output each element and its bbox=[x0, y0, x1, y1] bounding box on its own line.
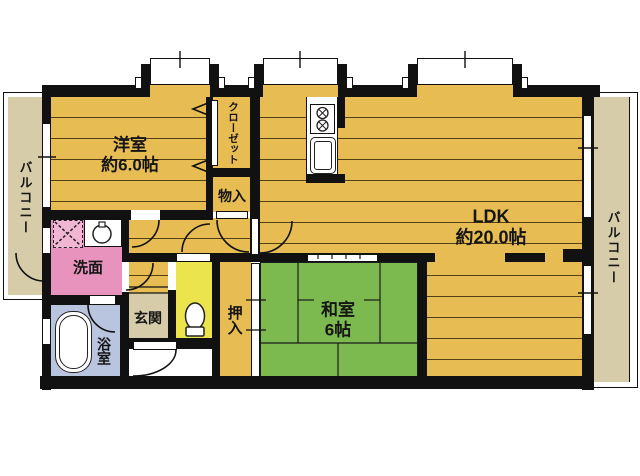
door-gap-balcony bbox=[43, 228, 50, 253]
entrance-porch bbox=[130, 350, 177, 376]
side-window-ldk-upper bbox=[583, 115, 592, 218]
door-gap-bath bbox=[90, 296, 115, 304]
ldk-name: LDK bbox=[472, 206, 509, 226]
label-monoire: 物入 bbox=[218, 188, 246, 204]
kitchen-sink-icon bbox=[310, 137, 336, 174]
shoji-partition-washitsu bbox=[307, 254, 378, 262]
ldk-size: 約20.0帖 bbox=[455, 227, 526, 247]
top-window-kitchen bbox=[263, 58, 338, 85]
kitchen-stove-icon bbox=[310, 104, 335, 134]
label-washitsu: 和室 6帖 bbox=[321, 300, 355, 339]
wall-washitsu-east bbox=[418, 262, 427, 377]
wall-stub-ldk-b bbox=[505, 253, 545, 262]
yoshitsu-name: 洋室 bbox=[113, 135, 147, 154]
door-gap-yoshitsu bbox=[131, 210, 160, 220]
label-yoshitsu: 洋室 約6.0帖 bbox=[101, 135, 159, 174]
window-nub bbox=[402, 77, 409, 89]
wall-kitchen-counter-south bbox=[306, 174, 345, 183]
label-genkan: 玄関 bbox=[134, 310, 162, 326]
washing-machine-pan-icon bbox=[53, 220, 83, 248]
wall-kitchen-stub bbox=[337, 97, 345, 128]
window-sill bbox=[150, 85, 210, 97]
door-gap-toilet bbox=[177, 254, 210, 261]
label-balcony-right: バルコニー bbox=[605, 211, 620, 286]
window-sill bbox=[263, 85, 338, 97]
floor-plan: 洋室 約6.0帖 LDK 約20.0帖 和室 6帖 クローゼット 物入 押入 玄… bbox=[0, 0, 640, 476]
label-closet: クローゼット bbox=[227, 102, 239, 165]
sliding-door-monoire bbox=[216, 211, 248, 219]
window-nub bbox=[135, 77, 142, 89]
door-leaf-ldk bbox=[251, 218, 259, 255]
window-nub bbox=[521, 77, 528, 89]
window-nub bbox=[346, 77, 353, 89]
window-post bbox=[408, 64, 417, 91]
wall-stub-ldk-a bbox=[400, 253, 435, 262]
side-window-bath bbox=[42, 318, 51, 345]
top-window-ldk bbox=[417, 58, 513, 85]
label-senmen: 洗面 bbox=[73, 259, 103, 276]
wall-closet-divider bbox=[206, 168, 252, 177]
toilet-icon bbox=[184, 302, 206, 339]
wall-senmen-bath bbox=[42, 295, 129, 305]
label-bath: 浴室 bbox=[96, 337, 112, 365]
corridor-floor bbox=[129, 218, 250, 255]
wall-toilet-oshiire bbox=[212, 253, 220, 380]
label-ldk: LDK 約20.0帖 bbox=[455, 206, 526, 247]
label-balcony-left: バルコニー bbox=[17, 161, 32, 236]
window-post bbox=[254, 64, 263, 91]
room-ldk-lower-floor bbox=[423, 255, 582, 376]
wall-stub-ldk-c bbox=[563, 249, 582, 262]
yoshitsu-size: 約6.0帖 bbox=[101, 155, 159, 174]
door-gap-senmen bbox=[122, 262, 129, 292]
bathtub-icon bbox=[55, 311, 92, 373]
sliding-door-oshiire bbox=[251, 263, 260, 377]
window-nub bbox=[218, 77, 225, 89]
side-window-ldk-lower bbox=[583, 265, 592, 335]
wall-corridor-south bbox=[122, 253, 435, 262]
label-oshiire: 押入 bbox=[225, 305, 242, 335]
washitsu-name: 和室 bbox=[321, 300, 355, 319]
top-window-yoshitsu bbox=[150, 58, 210, 85]
washbasin-icon bbox=[84, 219, 122, 247]
window-sill bbox=[417, 85, 513, 97]
sliding-door-closet bbox=[211, 100, 218, 166]
window-post bbox=[141, 64, 150, 91]
entrance-door-leaf bbox=[133, 341, 177, 350]
side-window-yoshitsu bbox=[42, 123, 51, 208]
washitsu-size: 6帖 bbox=[325, 320, 351, 339]
window-nub bbox=[248, 77, 255, 89]
